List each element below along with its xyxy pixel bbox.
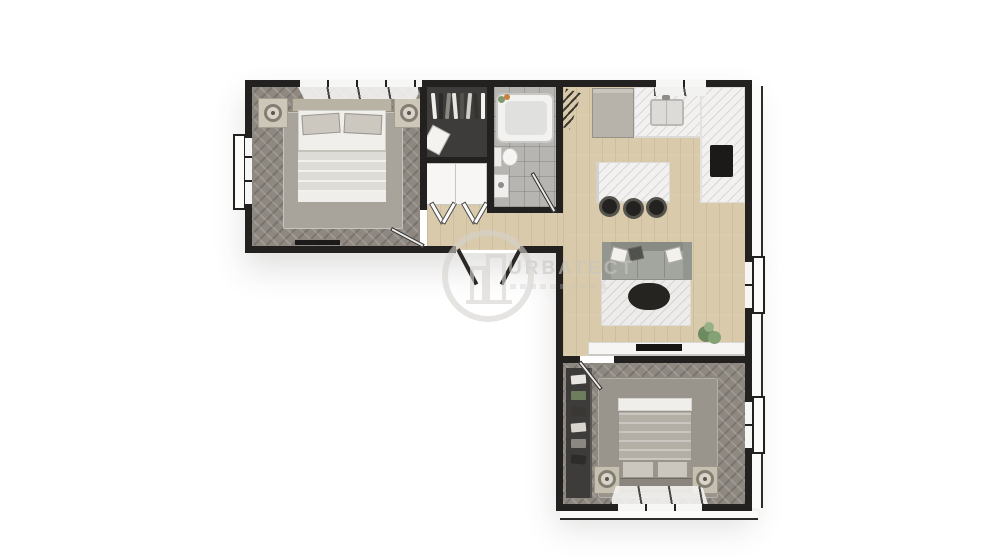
bedroom2-open-closet [566, 368, 592, 498]
clothes-item [430, 93, 436, 119]
clothes-item [465, 93, 471, 119]
clothes-item [570, 406, 586, 416]
clothes-item [570, 374, 586, 384]
bedroom1-left-window [245, 138, 252, 206]
tv-on-console [636, 344, 682, 351]
kitchen-sink [650, 99, 684, 126]
bar-stool-2 [623, 198, 644, 219]
cooktop [710, 145, 733, 177]
console-plant-foliage-2 [708, 331, 721, 344]
wall-rightwing-left-exterior [556, 250, 563, 511]
bedroom2-lamp-right [696, 470, 714, 488]
bedroom2-duvet [618, 411, 692, 461]
kitchen-top-window [654, 80, 706, 87]
kitchen-faucet [662, 95, 670, 100]
exterior-wall-face-bottom [560, 511, 758, 520]
fridge-cabinet [592, 88, 634, 138]
clothes-item [444, 93, 450, 119]
wall-closet-left [420, 86, 427, 210]
wall-bedroom1-bottom [245, 246, 456, 253]
entry-door-leaf-left [456, 248, 478, 285]
bedroom1-top-window-glass [298, 87, 422, 99]
bedroom1-pillow-right [344, 113, 383, 135]
bedroom2-lamp-left [598, 470, 616, 488]
console-plant-foliage-3 [704, 322, 714, 332]
clothes-item [571, 391, 586, 400]
closet-cabinet-divider [455, 164, 456, 204]
sofa-armrest-left [602, 242, 611, 280]
bedroom1-pillow-left [301, 113, 340, 136]
closet-storage-cabinet [425, 163, 487, 205]
clothes-item [570, 422, 586, 432]
entry-door-leaf-right [500, 248, 522, 285]
bedroom2-right-window [745, 400, 752, 450]
clothes-item [472, 93, 478, 119]
wall-bedroom2-top-right [614, 356, 752, 363]
bedroom1-lamp-left [264, 104, 282, 122]
bedroom1-duvet [298, 150, 386, 192]
clothes-item [439, 93, 443, 119]
clothes-item [460, 93, 464, 119]
clothes-item [570, 454, 586, 464]
kitchen-sink-divider [666, 101, 667, 124]
bedroom1-lamp-right [400, 104, 418, 122]
living-room-right-window [745, 260, 752, 310]
bedroom2-bed-foot [618, 398, 692, 411]
bedroom2-bottom-window [616, 504, 702, 511]
living-room-right-window-sill [752, 256, 765, 314]
clothes-item [481, 93, 485, 119]
clothes-item [571, 439, 586, 448]
bar-stool-1 [599, 196, 620, 217]
toilet-tank [494, 147, 502, 167]
floor-plan-render: URBATECT [0, 0, 1000, 560]
coffee-table [628, 283, 670, 310]
closet-clothes-rail [430, 93, 486, 127]
bathroom-sink-basin [498, 182, 504, 188]
toilet-bowl [502, 148, 518, 166]
bedroom2-pillow-right [657, 461, 688, 478]
bedroom1-bed-foot [298, 192, 386, 202]
bathtub-basin [505, 101, 547, 135]
wall-closet-bottom [420, 157, 494, 163]
bedroom2-pillow-left [622, 461, 654, 478]
wall-bathroom-right [556, 86, 563, 213]
bedroom1-wall-tv [295, 240, 340, 245]
bedroom1-top-window [298, 80, 422, 87]
clothes-item [451, 93, 457, 119]
wall-closet-bathroom-divider [487, 86, 494, 213]
bedroom2-window-glass-perspective [610, 486, 708, 504]
bedroom2-right-window-sill [752, 396, 765, 454]
sofa-cushion-seam-2 [664, 252, 665, 278]
sofa-armrest-right [683, 242, 692, 280]
wall-bedroom2-top-left [556, 356, 580, 363]
bathroom-flower [504, 94, 510, 100]
bar-stool-3 [646, 197, 667, 218]
